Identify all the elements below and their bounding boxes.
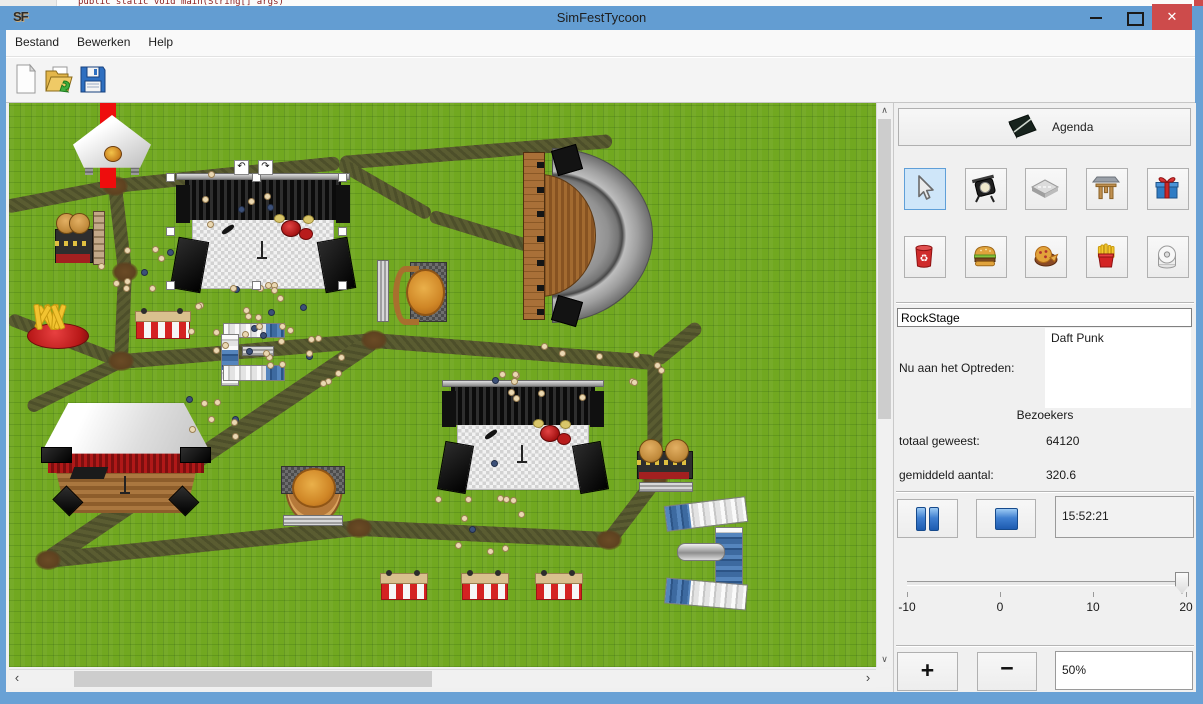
slider-tick <box>1000 592 1001 597</box>
visitor-dot <box>186 396 193 403</box>
app-window: SF SimFestTycoon ✕ BestandBewerkenHelp ↶… <box>0 6 1203 704</box>
visitor-dot <box>214 399 221 406</box>
slider-tick-label: 0 <box>997 600 1004 614</box>
visitor-dot <box>278 338 285 345</box>
minimize-icon <box>1090 17 1102 19</box>
rotate-left-icon[interactable]: ↶ <box>234 160 249 175</box>
container-blue-section <box>665 504 692 531</box>
monitor-speaker <box>537 285 544 291</box>
visitor-dot <box>338 354 345 361</box>
horizontal-scroll-thumb[interactable] <box>74 671 432 687</box>
scroll-up-icon[interactable]: ∧ <box>877 103 892 118</box>
map-object-big-stage[interactable] <box>41 403 211 513</box>
monitor-speaker <box>537 309 544 315</box>
agenda-label: Agenda <box>1052 120 1093 134</box>
visitor-dot <box>256 323 263 330</box>
visitor-dot <box>255 314 262 321</box>
tool-button-toilet-roll[interactable] <box>1147 236 1189 278</box>
pause-icon <box>929 507 939 531</box>
selection-handle[interactable] <box>338 281 347 290</box>
svg-text:♻: ♻ <box>920 254 929 265</box>
visitor-dot <box>491 460 498 467</box>
new-file-button[interactable] <box>11 63 41 95</box>
speed-slider-thumb[interactable] <box>1175 572 1189 594</box>
map-object-bench[interactable] <box>377 260 389 322</box>
menu-item-bestand[interactable]: Bestand <box>6 30 68 49</box>
drum <box>557 433 571 445</box>
menu-bar: BestandBewerkenHelp <box>6 30 1195 57</box>
map-object-striped-stand[interactable] <box>135 311 189 339</box>
path-segment <box>108 185 132 273</box>
visitor-dot <box>461 515 468 522</box>
visitors-total-value: 64120 <box>1046 434 1079 448</box>
clock-display: 15:52:21 <box>1055 496 1194 538</box>
rotate-right-icon[interactable]: ↷ <box>258 160 273 175</box>
selection-handle[interactable] <box>252 281 261 290</box>
scrollbar-corner <box>876 669 891 687</box>
titlebar[interactable]: SF SimFestTycoon ✕ <box>0 6 1203 30</box>
burger <box>69 213 90 234</box>
visitor-dot <box>300 304 307 311</box>
pause-button[interactable] <box>897 499 958 538</box>
scroll-down-icon[interactable]: ∨ <box>877 652 892 667</box>
stand-skirt <box>536 581 582 600</box>
visitor-dot <box>499 371 506 378</box>
separator <box>896 645 1194 646</box>
path-junction <box>35 550 61 570</box>
minimize-button[interactable] <box>1082 6 1110 30</box>
visitor-dot <box>279 361 286 368</box>
visitor-dot <box>631 379 638 386</box>
maximize-icon <box>1127 12 1144 26</box>
visitor-dot <box>513 395 520 402</box>
selection-handle[interactable] <box>338 227 347 236</box>
stage-name-input[interactable] <box>897 308 1192 327</box>
stage-rig-left <box>176 185 191 223</box>
visitor-dot <box>158 255 165 262</box>
stand-prop <box>467 570 473 576</box>
visitor-dot <box>320 380 327 387</box>
visitor-dot <box>202 196 209 203</box>
separator <box>896 302 1194 303</box>
stage-rig-right <box>336 185 351 223</box>
burger <box>639 439 663 463</box>
visitor-dot <box>579 394 586 401</box>
speed-slider-track[interactable] <box>907 581 1187 586</box>
stage-rig-right <box>590 391 603 427</box>
menu-item-bewerken[interactable]: Bewerken <box>68 30 139 49</box>
visitor-dot <box>455 542 462 549</box>
zoom-level-value: 50% <box>1062 663 1086 677</box>
path-segment <box>373 333 655 370</box>
stand-skirt <box>462 581 508 600</box>
selection-handle[interactable] <box>166 227 175 236</box>
map-object-pipe-stack[interactable] <box>677 543 725 561</box>
scroll-left-icon[interactable]: ‹ <box>9 670 25 688</box>
clock-value: 15:52:21 <box>1062 509 1109 523</box>
stand-prop <box>541 570 547 576</box>
visitor-dot <box>287 327 294 334</box>
visitor-dot <box>149 285 156 292</box>
visitor-dot <box>538 390 545 397</box>
stand-prop <box>177 308 183 314</box>
pizza <box>292 468 336 508</box>
map-object-bench[interactable] <box>639 482 693 492</box>
now-performing-label: Nu aan het Optreden: <box>899 361 1014 375</box>
visitor-dot <box>279 323 286 330</box>
tool-button-road-tile[interactable] <box>1025 168 1067 210</box>
visitor-dot <box>152 246 159 253</box>
vertical-scrollbar[interactable]: ∧ ∨ <box>876 103 892 667</box>
stage-truss <box>442 380 603 387</box>
path-junction <box>596 530 622 550</box>
slider-tick <box>907 592 908 597</box>
agenda-button[interactable]: Agenda <box>898 108 1191 146</box>
visitor-dot <box>596 353 603 360</box>
visitor-dot <box>195 303 202 310</box>
visitor-dot <box>188 328 195 335</box>
visitor-dot <box>222 342 229 349</box>
scroll-right-icon[interactable]: › <box>860 670 876 688</box>
visitor-dot <box>487 548 494 555</box>
open-file-button[interactable] <box>44 63 74 95</box>
visitor-dot <box>435 496 442 503</box>
stand-skirt <box>136 319 190 339</box>
stage-curtain <box>451 385 596 425</box>
speaker-top-right <box>180 447 211 463</box>
map-object-counter[interactable] <box>93 211 105 265</box>
visitor-dot <box>141 269 148 276</box>
map-object-container-row[interactable] <box>223 365 285 381</box>
tool-button-burger[interactable] <box>965 236 1007 278</box>
visitor-dot <box>268 309 275 316</box>
selection-handle[interactable] <box>338 173 347 182</box>
mic-stand <box>521 445 523 461</box>
path-junction <box>108 351 134 371</box>
now-performing-box: Daft Punk <box>1045 328 1191 408</box>
map-object-burger-stand[interactable] <box>637 439 691 479</box>
stage-roof <box>41 403 211 454</box>
zoom-in-button[interactable]: + <box>897 652 958 691</box>
monitor-speaker <box>537 162 544 168</box>
visitor-dot <box>503 496 510 503</box>
menu-item-help[interactable]: Help <box>139 30 182 49</box>
slider-tick-label: 10 <box>1086 600 1099 614</box>
speaker-top-left <box>41 447 72 463</box>
visitor-dot <box>98 263 105 270</box>
monitor-speaker <box>537 236 544 242</box>
visitor-dot <box>189 426 196 433</box>
grill-flames <box>55 241 91 246</box>
path-segment <box>359 520 610 548</box>
visitor-dot <box>238 206 245 213</box>
visitors-average-label: gemiddeld aantal: <box>899 468 994 482</box>
map-object-striped-stand[interactable] <box>535 573 581 600</box>
slider-tick <box>1186 592 1187 597</box>
visitor-dot <box>502 545 509 552</box>
visitors-header: Bezoekers <box>894 408 1196 422</box>
map-object-fries-stand[interactable] <box>27 303 87 349</box>
path-segment <box>651 320 705 368</box>
map-object-burger-stand[interactable] <box>55 213 91 263</box>
window-title: SimFestTycoon <box>0 10 1203 25</box>
now-performing-value: Daft Punk <box>1051 331 1104 345</box>
visitor-dot <box>267 204 274 211</box>
horizontal-scrollbar[interactable]: ‹ › <box>9 669 876 688</box>
visitor-dot <box>465 496 472 503</box>
tool-button-fries[interactable] <box>1086 236 1128 278</box>
stand-base <box>639 472 689 479</box>
visitors-average-value: 320.6 <box>1046 468 1076 482</box>
mic-stand <box>124 476 126 492</box>
festival-map[interactable]: ↶↷ <box>9 103 876 667</box>
maximize-button[interactable] <box>1120 6 1148 30</box>
stop-icon <box>995 508 1018 530</box>
stand-base <box>56 254 89 263</box>
tool-button-trash-can[interactable]: ♻ <box>904 236 946 278</box>
side-panel: Agenda ♻ Nu aan het Optreden: Daft Punk … <box>893 103 1196 692</box>
map-object-pizza-table[interactable] <box>389 258 445 324</box>
visitor-dot <box>306 350 313 357</box>
visitor-dot <box>124 247 131 254</box>
visitor-dot <box>201 400 208 407</box>
mic-stand <box>261 241 263 257</box>
map-object-bench[interactable] <box>283 515 343 526</box>
close-button[interactable]: ✕ <box>1152 4 1192 30</box>
slider-tick-label: 20 <box>1179 600 1192 614</box>
visitors-total-label: totaal geweest: <box>899 434 980 448</box>
visitor-dot <box>213 329 220 336</box>
map-object-striped-stand[interactable] <box>461 573 507 600</box>
toolbar <box>6 57 1195 103</box>
slider-tick-label: -10 <box>898 600 915 614</box>
visitor-dot <box>335 370 342 377</box>
stage-rig-left <box>442 391 455 427</box>
tool-button-gate[interactable] <box>1086 168 1128 210</box>
visitor-dot <box>207 221 214 228</box>
visitor-dot <box>260 332 267 339</box>
visitor-dot <box>271 287 278 294</box>
stop-button[interactable] <box>976 499 1036 538</box>
visitor-dot <box>518 511 525 518</box>
visitor-dot <box>497 495 504 502</box>
piano <box>69 467 107 479</box>
visitor-dot <box>245 313 252 320</box>
slider-tick <box>1093 592 1094 597</box>
visitor-dot <box>264 193 271 200</box>
screen: public static void main(String[] args) S… <box>0 0 1203 704</box>
visitor-dot <box>208 416 215 423</box>
path-junction <box>361 330 387 350</box>
tool-button-spotlight[interactable] <box>965 168 1007 210</box>
tool-button-cursor[interactable] <box>904 168 946 210</box>
map-object-rock-stage[interactable] <box>172 173 354 291</box>
stand-skirt <box>381 581 427 600</box>
zoom-out-button[interactable]: − <box>977 652 1037 691</box>
pause-icon <box>916 507 926 531</box>
monitor-speaker <box>537 211 544 217</box>
save-file-button[interactable] <box>78 63 108 95</box>
path-junction <box>346 518 372 538</box>
container-blue-section <box>665 579 691 605</box>
pizza <box>406 269 445 317</box>
burger <box>665 439 689 463</box>
map-object-tent[interactable] <box>73 115 151 175</box>
agenda-book-icon <box>1004 112 1040 142</box>
monitor-speaker <box>537 187 544 193</box>
separator <box>896 491 1194 492</box>
visitor-dot <box>308 336 315 343</box>
visitor-dot <box>315 335 322 342</box>
tool-button-gift[interactable] <box>1147 168 1189 210</box>
visitor-dot <box>277 295 284 302</box>
zoom-level-field[interactable]: 50% <box>1055 651 1193 690</box>
map-object-striped-stand[interactable] <box>380 573 426 600</box>
map-object-amphitheater[interactable] <box>523 148 653 323</box>
vertical-scroll-thumb[interactable] <box>878 119 891 419</box>
stand-prop <box>386 570 392 576</box>
visitor-dot <box>492 377 499 384</box>
tool-button-pizza[interactable] <box>1025 236 1067 278</box>
monitor-speaker <box>537 260 544 266</box>
visitor-dot <box>167 249 174 256</box>
window-client-area: BestandBewerkenHelp ↶↷ ∧ ∨ ‹ <box>6 30 1195 692</box>
visitor-dot <box>510 497 517 504</box>
selection-handle[interactable] <box>166 281 175 290</box>
selection-handle[interactable] <box>166 173 175 182</box>
visitor-dot <box>559 350 566 357</box>
